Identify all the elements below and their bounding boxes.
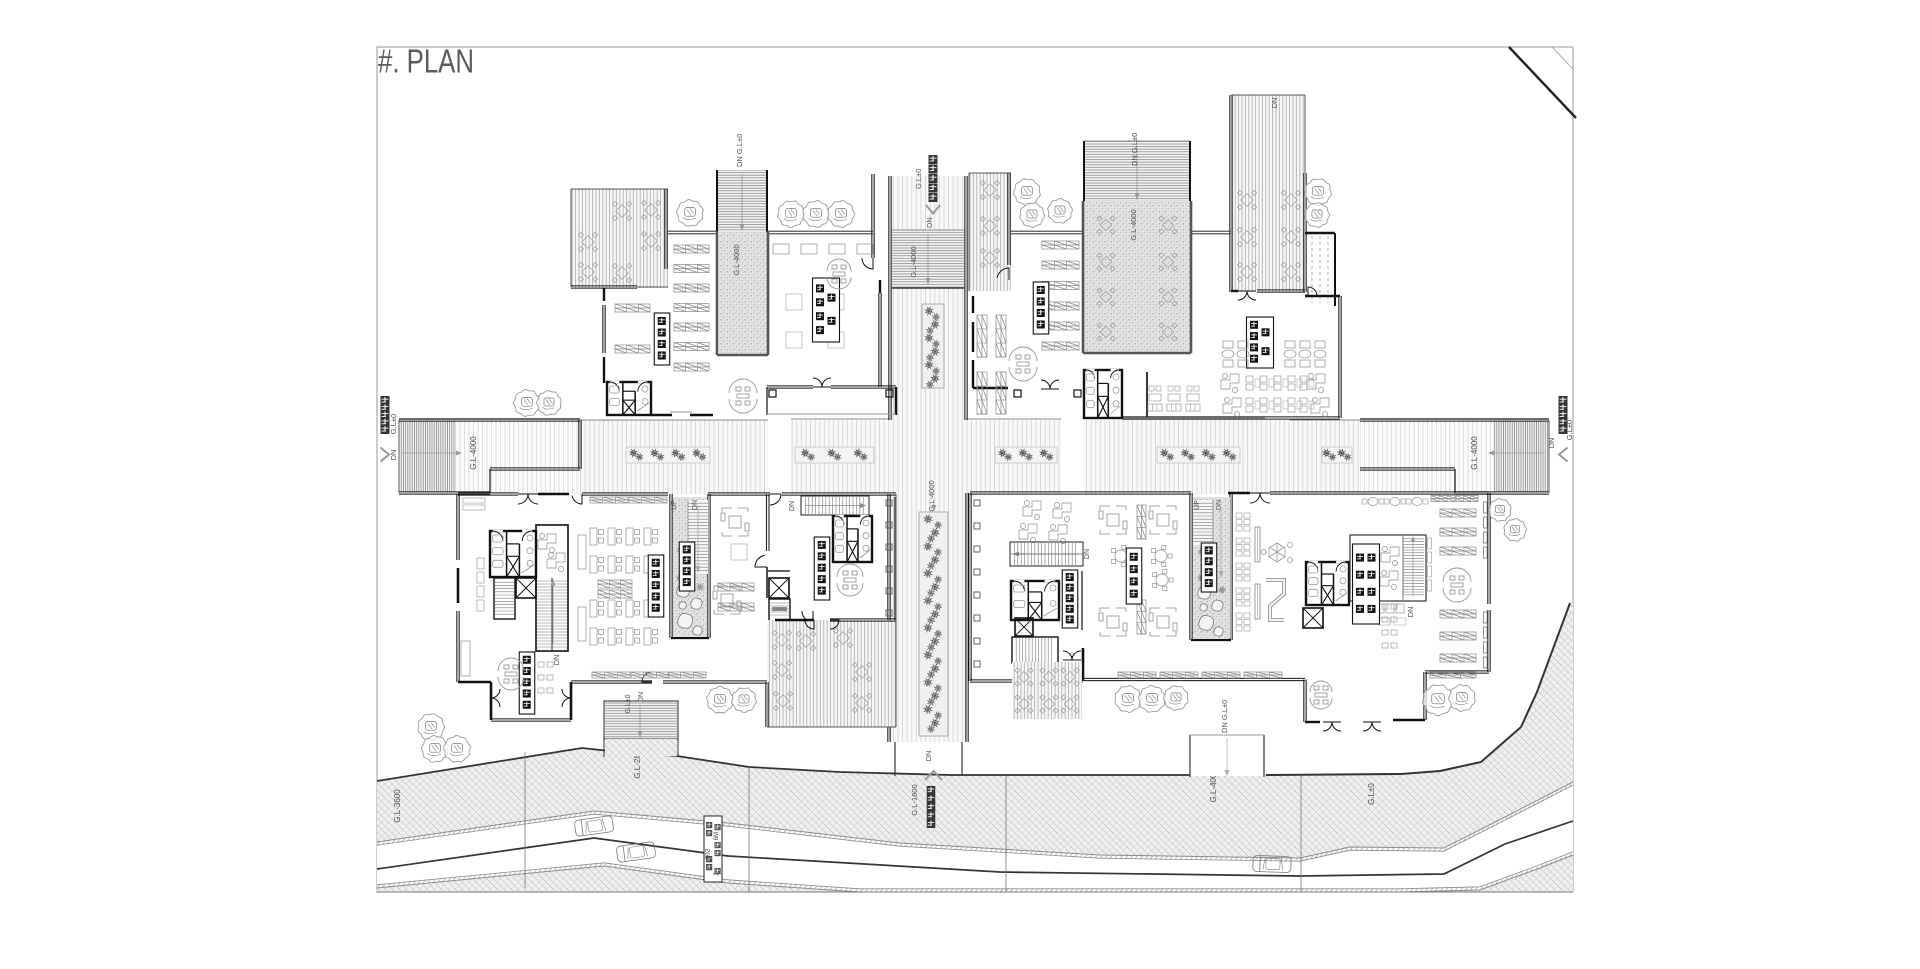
svg-text:G.L-4000: G.L-4000 — [732, 244, 741, 275]
svg-text:G.L±0: G.L±0 — [1367, 783, 1376, 805]
svg-text:G.L-4000: G.L-4000 — [1129, 209, 1138, 240]
svg-text:G.L±0: G.L±0 — [389, 414, 398, 434]
svg-text:DN: DN — [1216, 500, 1223, 510]
svg-text:DN: DN — [552, 655, 561, 666]
svg-text:6M: 6M — [714, 832, 720, 840]
svg-text:G.L±0: G.L±0 — [914, 169, 923, 189]
svg-text:G.L-4000: G.L-4000 — [1470, 436, 1479, 470]
svg-text:G.L-4000: G.L-4000 — [909, 246, 918, 277]
svg-text:DN: DN — [1084, 549, 1091, 559]
svg-text:DN: DN — [1547, 438, 1556, 449]
svg-text:DN G.L±0: DN G.L±0 — [735, 134, 744, 167]
svg-text:UP: UP — [671, 500, 678, 510]
svg-text:DN: DN — [638, 692, 645, 702]
svg-text:G.L-400: G.L-400 — [1209, 773, 1218, 802]
svg-text:DN: DN — [1406, 607, 1415, 618]
svg-text:DN G.L±0: DN G.L±0 — [1130, 133, 1139, 166]
svg-text:G.L±0: G.L±0 — [625, 694, 632, 713]
svg-text:UP: UP — [1194, 500, 1201, 510]
svg-text:G.L-1600: G.L-1600 — [910, 784, 919, 815]
svg-text:DN G.L±0: DN G.L±0 — [1220, 700, 1229, 733]
svg-text:DN: DN — [692, 500, 699, 510]
svg-text:DN: DN — [789, 501, 796, 511]
svg-text:DN: DN — [924, 751, 933, 762]
svg-text:DN: DN — [389, 450, 398, 461]
svg-text:G.L-4000: G.L-4000 — [469, 436, 478, 470]
svg-text:G.L±0: G.L±0 — [1565, 420, 1574, 440]
svg-text:#. PLAN: #. PLAN — [378, 43, 474, 80]
svg-text:DN: DN — [925, 217, 934, 228]
svg-text:302: 302 — [705, 848, 712, 859]
svg-text:DN: DN — [1270, 98, 1279, 109]
svg-text:G.L-3600: G.L-3600 — [393, 789, 402, 823]
